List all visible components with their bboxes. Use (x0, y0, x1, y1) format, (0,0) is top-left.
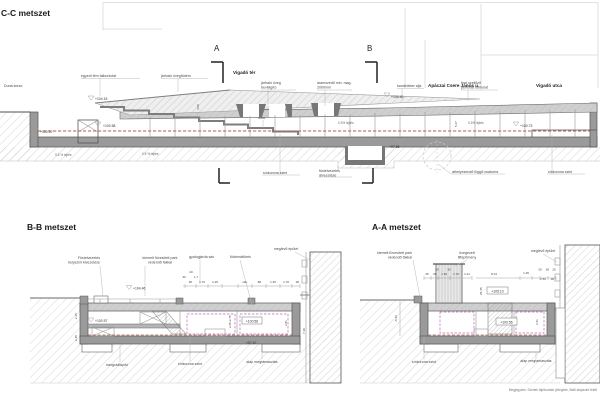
aa-label-park: kiemelt füvesített park (377, 251, 412, 255)
bb-dim: 1.70 (199, 280, 205, 284)
bb-dim: 1.25 (270, 280, 276, 284)
bb-dim-281: 2.81 (284, 320, 288, 326)
label-lamp-base: kandeláber alja (397, 84, 421, 88)
street-vigado-ter: Vigadó tér (233, 70, 256, 75)
bb-dim: .30 (188, 280, 193, 284)
aa-dim: 25 (552, 268, 556, 272)
cut-mark-a-top (211, 62, 223, 83)
bb-dim-line (183, 284, 300, 288)
cut-letter-b: B (367, 44, 372, 53)
aa-dim-261: 2.61 (535, 319, 539, 325)
aa-dim: 1.39 (441, 272, 447, 276)
foundation-pad (424, 344, 458, 352)
aa-dim: .30 (550, 277, 555, 281)
label-metal-cladding: egyedi fém falburkolat (81, 74, 116, 78)
bb-label-walkway: gyalogjárda sáv (189, 255, 214, 259)
aa-label-rail-level: sínkorona szint (412, 360, 436, 364)
aa-dim-2535: 25-35 (479, 287, 483, 295)
bb-label-slab-opening: födémáttörés (230, 255, 251, 259)
foundation-pad (262, 344, 300, 352)
building-mass (310, 252, 341, 383)
aa-dim: 20 (538, 268, 542, 272)
slope-2: 0.5 % lejtés (142, 152, 159, 156)
bb-existing-building (300, 252, 341, 383)
aa-dim-125: 1.25 (523, 271, 529, 275)
vent-outlet (94, 296, 108, 303)
aa-dim-50: 50 (435, 268, 439, 272)
bb-label-smoke-out-2: helyszíni kivezetése (68, 261, 100, 265)
cut-letter-a: A (214, 44, 220, 53)
bb-dim-740: 7.40 (302, 328, 306, 334)
dim-547: 5.47 (454, 121, 458, 127)
bb-dim: 1.25 (212, 280, 218, 284)
elev-104-15: +104.15 (95, 97, 107, 101)
skylight-gap (269, 104, 285, 117)
street-vigado-utca: Vigadó utca (536, 83, 562, 88)
soil-bottom (0, 147, 600, 161)
floor-slab (420, 336, 555, 344)
aa-dim: 1.70 (453, 272, 459, 276)
label-perforated: fent szellőző (461, 81, 481, 85)
bb-label-smoke-out: Füstelvezetés (78, 256, 100, 260)
label-pantograph: áramszedő min. mag. (317, 81, 352, 85)
bb-elev-97-67: +97.67 (246, 341, 257, 345)
sheet-note: Megjegyzés: Szintek tájékoztató jellegűe… (509, 388, 597, 392)
skylight-gap (318, 103, 334, 116)
aa-dim: 1.50 (540, 277, 546, 281)
pit-interior (348, 146, 382, 160)
label-smoke-duct-2: átvezetése (319, 174, 336, 178)
window (555, 290, 560, 297)
aa-dim: 1.21 (464, 272, 470, 276)
bb-dim: .30 (295, 280, 300, 284)
bb-dim-248: 2.48 (74, 335, 78, 341)
foundation-pad (82, 344, 112, 352)
aa-dim: 25 (425, 272, 429, 276)
aa-title: A-A metszet (372, 222, 421, 232)
interior (428, 311, 547, 336)
bb-dim: vált. (242, 280, 248, 284)
bb-elev-100-57: +100.57 (95, 319, 107, 323)
elev-100-73: +100.73 (520, 124, 532, 128)
foundation-pile (556, 308, 565, 378)
label-glass-skylight-2: bevilágító (261, 86, 276, 90)
elev-100-10: +100.10 (40, 130, 52, 134)
label-rail-level-right: sínkorona szint (548, 170, 572, 174)
bb-label-existing-building: meglévő épület (274, 247, 298, 251)
curb (176, 298, 183, 304)
label-perforated-2: perforált burkolat (461, 86, 488, 90)
slope-1: 0.5 % lejtés (55, 153, 72, 157)
street-duna-korzo: Duna korzó (4, 84, 22, 88)
curb (414, 296, 422, 303)
skylight-gap (243, 104, 259, 117)
aa-tunnel-box (414, 264, 555, 352)
elev-97-86: +97.86 (389, 145, 400, 149)
foundation-pad (500, 344, 540, 352)
bb-title: B-B metszet (27, 222, 76, 232)
bb-label-park: kiemelt füvesített park (143, 256, 178, 260)
aa-elev-105-10: +105.10 (491, 289, 503, 293)
section-aa: A-A metszet (360, 222, 600, 383)
aa-label-foundation: alap megtámasztás (520, 359, 551, 363)
smoke-pit (345, 146, 385, 165)
soil-boundary (0, 161, 600, 168)
label-smoke-duct: füstelvezetés (319, 169, 340, 173)
aa-dim: .50 (545, 268, 550, 272)
bb-label-park-2: védendő fákkal (148, 261, 172, 265)
window (555, 274, 560, 281)
section-bb: B-B metszet (27, 222, 341, 383)
parapet (80, 296, 88, 304)
bb-label-foundation: alap megtámasztás (246, 360, 277, 364)
building-mass (565, 245, 600, 383)
section-cc: A B C-C metszet Duna korzó Vigadó tér Ap… (0, 3, 600, 184)
cut-mark-b-bottom (362, 168, 373, 183)
cc-leaders (81, 79, 585, 178)
cut-mark-b-top (365, 62, 377, 83)
aa-dim-546: -5.46 (394, 315, 398, 322)
bb-label-rail-level: sínkorona szint (178, 362, 202, 366)
bb-label-silencer: hangcsillapító (106, 363, 128, 367)
cc-title: C-C metszet (1, 8, 50, 18)
top-slab-hatch (420, 303, 555, 311)
bb-dim-215: 2.15 (74, 313, 78, 319)
label-glass-deck: járható üvegfödém (160, 74, 191, 78)
label-rail-level-left: sínkorona szint (263, 171, 287, 175)
label-pantograph-2: 2000mm (317, 86, 331, 90)
bb-dim: 1.70 (283, 280, 289, 284)
aa-label-glazed: üvegezett (459, 251, 475, 255)
aa-label-park-2: védendő fákkal (388, 256, 412, 260)
label-hanging-duct: áthelyezendő függő csatorna (452, 170, 498, 174)
label-glass-skylight: járható üveg (260, 81, 281, 85)
aa-label-glazed-2: liftépítmény (458, 256, 477, 260)
aa-existing-building (555, 245, 600, 383)
bb-dim-30: 30 (182, 275, 186, 279)
elev-104-40: +104.40 (391, 95, 403, 99)
slope-3: 0.3% lejtés (338, 121, 354, 125)
drawing-sheet: A B C-C metszet Duna korzó Vigadó tér Ap… (0, 0, 600, 400)
aa-dim: .50 (432, 272, 437, 276)
bb-dim-265: 2.65-2.75 (228, 315, 232, 328)
cut-mark-a-bottom (219, 168, 230, 183)
sections-drawing: A B C-C metszet Duna korzó Vigadó tér Ap… (0, 0, 600, 400)
top-slab-hatch (80, 303, 300, 311)
aa-elev-100-56: +100.56 (500, 320, 512, 324)
bb-elev-100-56: +100.56 (246, 319, 258, 323)
floor-slab (30, 137, 597, 147)
dim-450: 4.50 (196, 104, 200, 110)
elev-100-58: +100.58 (103, 124, 115, 128)
aa-dim-30: 30 (447, 268, 451, 272)
foundation-pad (170, 344, 206, 352)
label-interior-small: rézsű (258, 116, 266, 120)
bb-elev-104-46: +104.46 (133, 287, 145, 291)
aa-label-existing-building: meglévő épület (531, 249, 555, 253)
slope-4: 0.3% lejtés (468, 121, 484, 125)
bb-dim-20: 20 (189, 270, 193, 274)
bb-dim-17: 1.7 (194, 275, 199, 279)
bb-dim: .80 (257, 280, 262, 284)
aa-dim-824: 8.24 (491, 272, 497, 276)
